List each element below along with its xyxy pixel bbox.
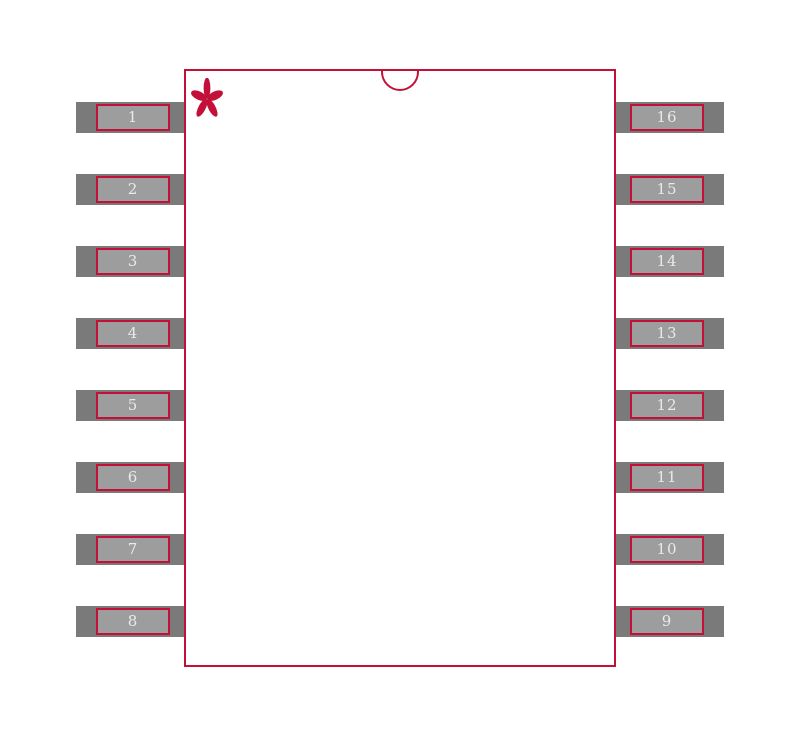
pin-15-pad: 15 <box>616 174 724 205</box>
pin-14-pad: 14 <box>616 246 724 277</box>
pin-6-pad: 6 <box>76 462 184 493</box>
pin-number: 4 <box>128 326 139 341</box>
pin-8-lead-outline: 8 <box>96 608 170 635</box>
pin-12-lead-outline: 12 <box>630 392 704 419</box>
pin-number: 3 <box>128 254 139 269</box>
pin-number: 2 <box>128 182 139 197</box>
ic-body-outline <box>184 69 616 667</box>
pin-1-lead-outline: 1 <box>96 104 170 131</box>
pin-number: 11 <box>656 470 677 485</box>
orientation-notch <box>381 71 419 91</box>
pin-7-lead-outline: 7 <box>96 536 170 563</box>
pin-number: 5 <box>128 398 139 413</box>
pin-3-lead-outline: 3 <box>96 248 170 275</box>
pin-7-pad: 7 <box>76 534 184 565</box>
footprint-canvas: 1 2 3 4 5 6 7 8 16 <box>0 0 800 739</box>
pin-16-lead-outline: 16 <box>630 104 704 131</box>
pin-13-pad: 13 <box>616 318 724 349</box>
pin-number: 13 <box>656 326 677 341</box>
pin-number: 15 <box>656 182 677 197</box>
pin-number: 6 <box>128 470 139 485</box>
pin-number: 12 <box>656 398 677 413</box>
pin-12-pad: 12 <box>616 390 724 421</box>
pin-4-lead-outline: 4 <box>96 320 170 347</box>
pin-2-lead-outline: 2 <box>96 176 170 203</box>
pin-number: 10 <box>656 542 677 557</box>
pin-6-lead-outline: 6 <box>96 464 170 491</box>
pin-9-pad: 9 <box>616 606 724 637</box>
pin-11-pad: 11 <box>616 462 724 493</box>
pin-3-pad: 3 <box>76 246 184 277</box>
pin-16-pad: 16 <box>616 102 724 133</box>
pin-1-pad: 1 <box>76 102 184 133</box>
pin-5-lead-outline: 5 <box>96 392 170 419</box>
pin-2-pad: 2 <box>76 174 184 205</box>
pin-one-asterisk-icon <box>190 78 224 120</box>
pin-11-lead-outline: 11 <box>630 464 704 491</box>
pin-14-lead-outline: 14 <box>630 248 704 275</box>
pin-4-pad: 4 <box>76 318 184 349</box>
pin-5-pad: 5 <box>76 390 184 421</box>
pin-8-pad: 8 <box>76 606 184 637</box>
pin-13-lead-outline: 13 <box>630 320 704 347</box>
pin-10-pad: 10 <box>616 534 724 565</box>
pin-number: 16 <box>656 110 677 125</box>
pin-number: 8 <box>128 614 139 629</box>
pin-number: 9 <box>662 614 673 629</box>
pin-9-lead-outline: 9 <box>630 608 704 635</box>
pin-15-lead-outline: 15 <box>630 176 704 203</box>
pin-number: 1 <box>128 110 139 125</box>
pin-number: 7 <box>128 542 139 557</box>
pin-number: 14 <box>656 254 677 269</box>
pin-10-lead-outline: 10 <box>630 536 704 563</box>
